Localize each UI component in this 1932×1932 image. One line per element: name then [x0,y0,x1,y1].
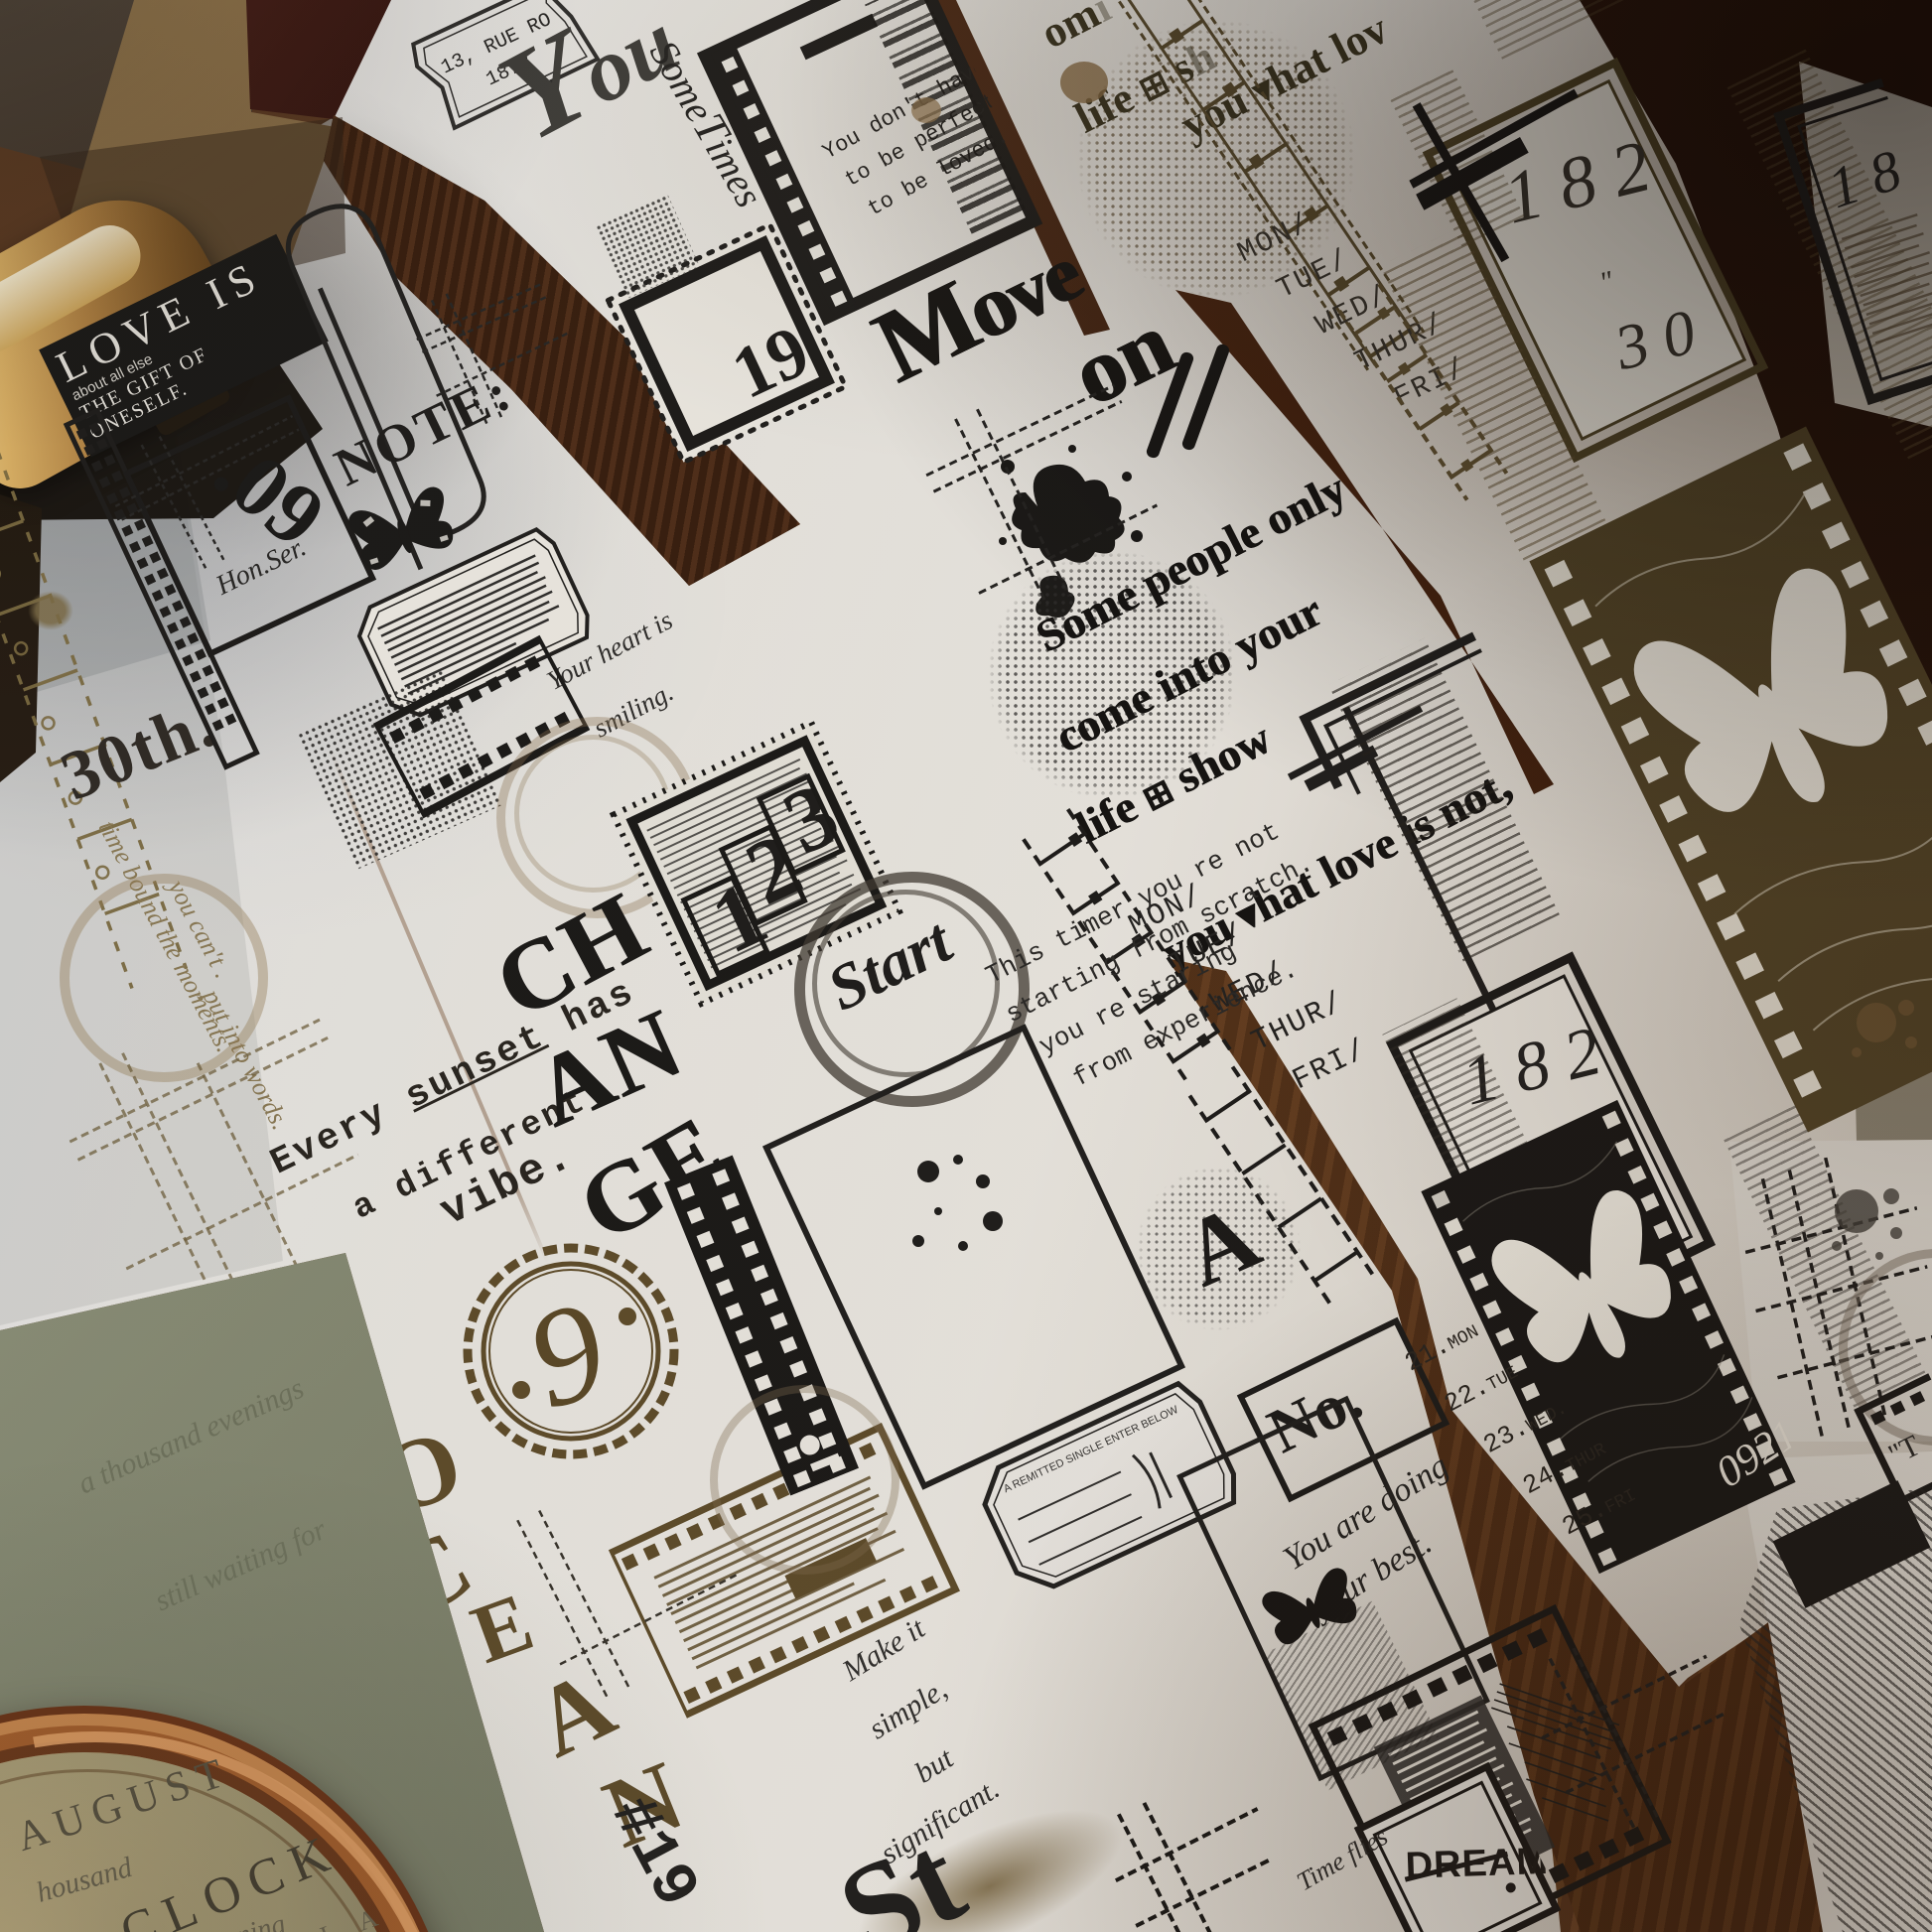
svg-text:9: 9 [510,1271,623,1439]
svg-text:1 8: 1 8 [1820,137,1908,220]
svg-text:"T: "T [1883,1429,1925,1471]
